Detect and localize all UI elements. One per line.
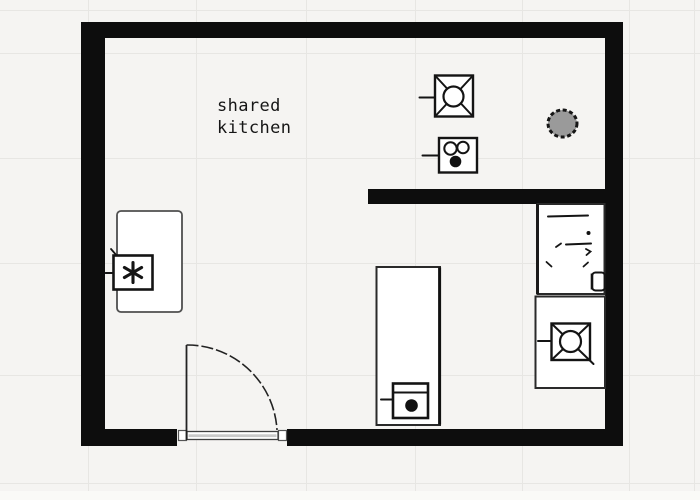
door-swing-arc-icon: [187, 345, 278, 430]
room-label-line1: shared: [217, 95, 291, 117]
wall-right[interactable]: [605, 22, 623, 446]
door[interactable]: [179, 345, 287, 441]
counter-left[interactable]: [106, 211, 183, 312]
light-fixture-icon[interactable]: [420, 76, 474, 117]
floor-plan-drawing: [0, 0, 700, 500]
island-counter[interactable]: [377, 267, 441, 425]
filled-circle: [450, 156, 462, 168]
stove-cabinet[interactable]: [536, 297, 606, 389]
asterisk-appliance-icon[interactable]: [106, 256, 153, 290]
wall-bottom-right[interactable]: [287, 429, 623, 446]
floor-plan-canvas: shared kitchen: [0, 0, 700, 500]
wall-bottom-left[interactable]: [81, 429, 177, 446]
wall-top[interactable]: [81, 22, 623, 38]
door-jamb-right: [279, 431, 287, 441]
door-threshold-band: [189, 434, 277, 437]
fixture-circle: [444, 87, 464, 107]
column-icon[interactable]: [548, 110, 577, 137]
dot-icon: [405, 399, 418, 412]
room-label-line2: kitchen: [217, 117, 291, 139]
room-label[interactable]: shared kitchen: [217, 95, 291, 140]
hollow-circle: [457, 142, 468, 153]
sink-counter: [538, 204, 605, 294]
socket-icon[interactable]: [423, 138, 478, 173]
door-jamb-left: [179, 431, 187, 441]
bottom-light-band: [0, 491, 700, 500]
wall-left[interactable]: [81, 22, 105, 446]
sink-cabinet[interactable]: [538, 204, 606, 294]
wall-interior[interactable]: [368, 189, 620, 204]
hollow-circle: [444, 142, 456, 154]
